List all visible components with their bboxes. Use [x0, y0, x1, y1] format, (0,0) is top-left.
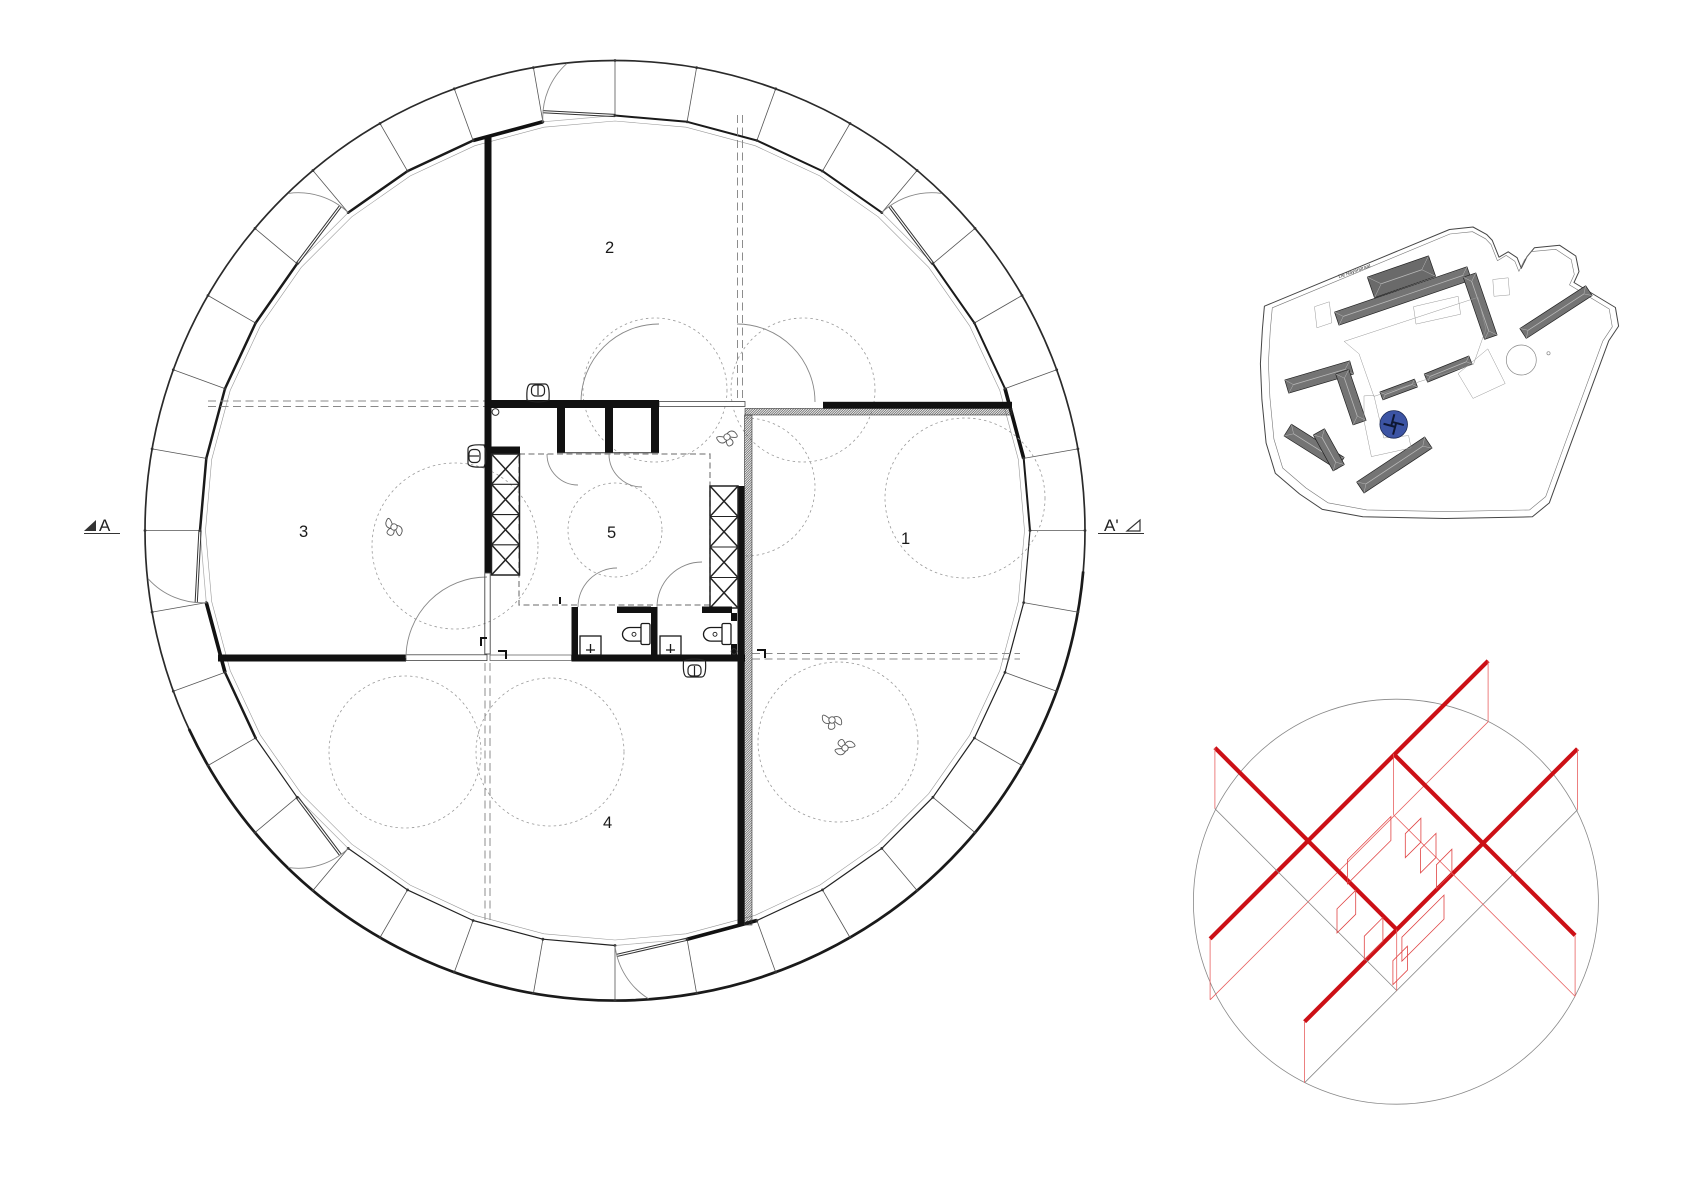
svg-text:A': A' — [1104, 516, 1119, 535]
svg-text:3: 3 — [299, 523, 308, 541]
svg-text:1: 1 — [901, 530, 910, 548]
svg-text:A: A — [99, 516, 111, 535]
svg-text:4: 4 — [603, 814, 612, 832]
svg-text:5: 5 — [607, 524, 616, 542]
svg-text:2: 2 — [605, 239, 614, 257]
